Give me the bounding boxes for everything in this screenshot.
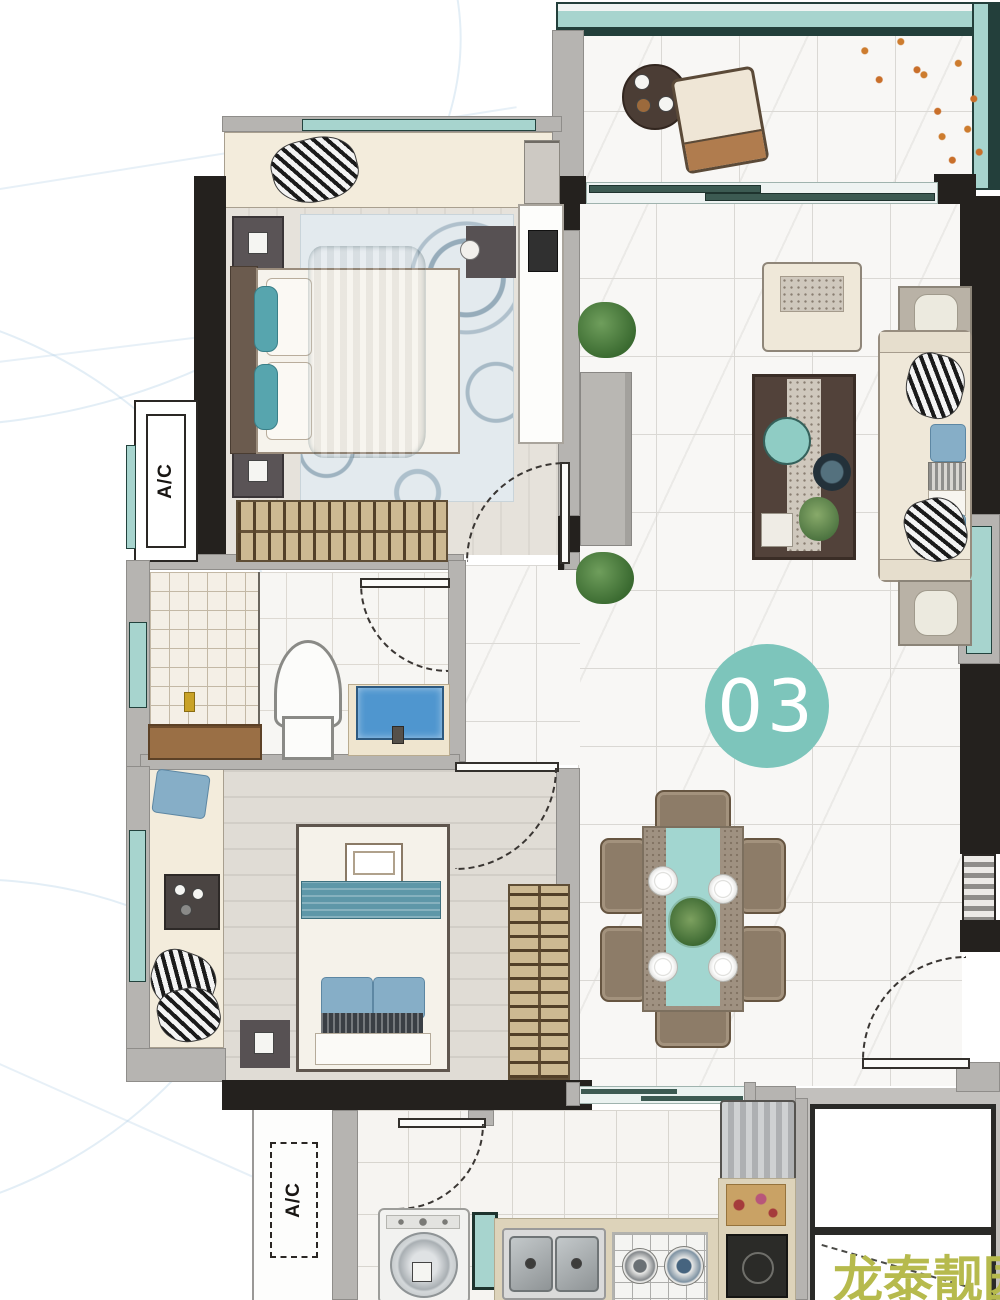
- wall: [332, 1110, 358, 1300]
- single-bed: [296, 824, 450, 1072]
- double-sink[interactable]: [502, 1228, 606, 1300]
- seat-pillow: [151, 768, 211, 819]
- armchair: [762, 262, 862, 352]
- bathroom-window: [129, 622, 147, 708]
- dining-chair[interactable]: [738, 926, 786, 1002]
- cutting-board: [726, 1184, 786, 1226]
- sofa-side-table: [898, 580, 972, 646]
- sliding-door-panel: [581, 1089, 677, 1094]
- wall: [448, 560, 466, 762]
- burner: [664, 1246, 704, 1286]
- shower-faucet[interactable]: [184, 692, 195, 712]
- living-plant: [576, 552, 634, 604]
- wall: [194, 176, 226, 570]
- sofa: [878, 330, 972, 582]
- sofa-armrest: [880, 332, 970, 353]
- washer-controls: [386, 1215, 460, 1229]
- shoe-cabinet: [962, 854, 996, 924]
- wardrobe-hangers: [508, 884, 570, 1080]
- dining-chair[interactable]: [738, 838, 786, 914]
- master-bedroom-window: [302, 119, 536, 131]
- dresser-stool: [460, 240, 480, 260]
- teal-bolster: [254, 286, 278, 352]
- wall: [960, 920, 1000, 952]
- sliding-door-panel: [589, 185, 761, 193]
- sink-faucet[interactable]: [392, 726, 404, 744]
- tea-pot: [636, 98, 651, 113]
- bay-shelf: [524, 140, 560, 204]
- nightstand: [240, 1020, 290, 1068]
- plate: [648, 866, 678, 896]
- teal-bolster: [254, 364, 278, 430]
- teal-tray: [763, 417, 811, 465]
- seat-side-table: [164, 874, 220, 930]
- balcony-plant: [928, 118, 992, 180]
- table-plant: [799, 497, 839, 541]
- washer-agitator: [412, 1262, 432, 1282]
- wall: [222, 1080, 592, 1110]
- sofa-armrest: [880, 559, 970, 580]
- coffee-table: [752, 374, 856, 560]
- bed-base: [315, 1033, 431, 1065]
- floor-plan: A/C: [0, 0, 1000, 1300]
- ac-window: [126, 445, 136, 549]
- washing-machine[interactable]: [378, 1208, 470, 1300]
- unit-number-badge: 03: [705, 644, 829, 768]
- ac-label: A/C: [155, 463, 177, 499]
- tv-screen: [528, 230, 558, 272]
- bed-runner: [301, 881, 441, 919]
- living-plant: [578, 302, 636, 358]
- drain: [525, 1258, 536, 1269]
- sliding-door-panel: [705, 193, 935, 201]
- tv-cabinet: [580, 372, 632, 546]
- gas-stove[interactable]: [612, 1232, 708, 1300]
- wall: [566, 1082, 580, 1106]
- dining-chair[interactable]: [600, 926, 648, 1002]
- fridge[interactable]: [720, 1100, 796, 1182]
- centerpiece-plant: [670, 898, 716, 946]
- ac-platform-bottom: A/C: [270, 1142, 318, 1258]
- second-bedroom-window: [129, 830, 146, 982]
- sink-bowl: [509, 1236, 553, 1292]
- cup: [180, 904, 192, 916]
- dark-bowl: [813, 453, 851, 491]
- drain: [571, 1258, 582, 1269]
- lobby-box: [810, 1104, 996, 1232]
- watermark: 龙泰靓园: [833, 1240, 1000, 1300]
- table-decor: [914, 590, 958, 636]
- hallway-floor: [458, 565, 580, 765]
- burner: [622, 1248, 658, 1284]
- sofa-pillow-gray: [928, 462, 966, 492]
- tea-cup: [658, 96, 674, 112]
- lounge-chair: [670, 65, 769, 174]
- sofa-zebra-pillow: [899, 348, 971, 424]
- balcony-wall-top: [556, 2, 1000, 36]
- dining-table: [642, 826, 744, 1012]
- ac-label-box-left: A/C: [146, 414, 186, 548]
- balcony-sliding-door[interactable]: [586, 182, 938, 204]
- armchair-cushion: [780, 276, 844, 312]
- decor: [254, 1032, 274, 1054]
- plate: [648, 952, 678, 982]
- bed-art-frame: [345, 843, 403, 883]
- dining-chair[interactable]: [600, 838, 648, 914]
- lamp: [248, 460, 268, 482]
- wall: [126, 1048, 226, 1082]
- shower-area: [150, 572, 260, 726]
- shower-bench: [148, 724, 262, 760]
- bed-throw: [321, 1013, 423, 1035]
- unit-number: 03: [717, 664, 817, 748]
- decor-box: [761, 513, 793, 547]
- oven-ring: [742, 1252, 774, 1284]
- tea-cup: [634, 74, 650, 90]
- built-in-oven[interactable]: [726, 1234, 788, 1298]
- ac-label: A/C: [283, 1182, 305, 1218]
- sink-bowl: [555, 1236, 599, 1292]
- lamp: [248, 232, 268, 254]
- toilet-seat: [282, 716, 334, 760]
- cup: [174, 884, 186, 896]
- plate: [708, 952, 738, 982]
- sofa-pillow: [930, 424, 966, 462]
- wall: [960, 664, 1000, 854]
- plate: [708, 874, 738, 904]
- teal-duvet: [308, 246, 426, 458]
- wardrobe-hangers: [236, 500, 448, 562]
- cup: [192, 888, 204, 900]
- nightstand: [232, 216, 284, 272]
